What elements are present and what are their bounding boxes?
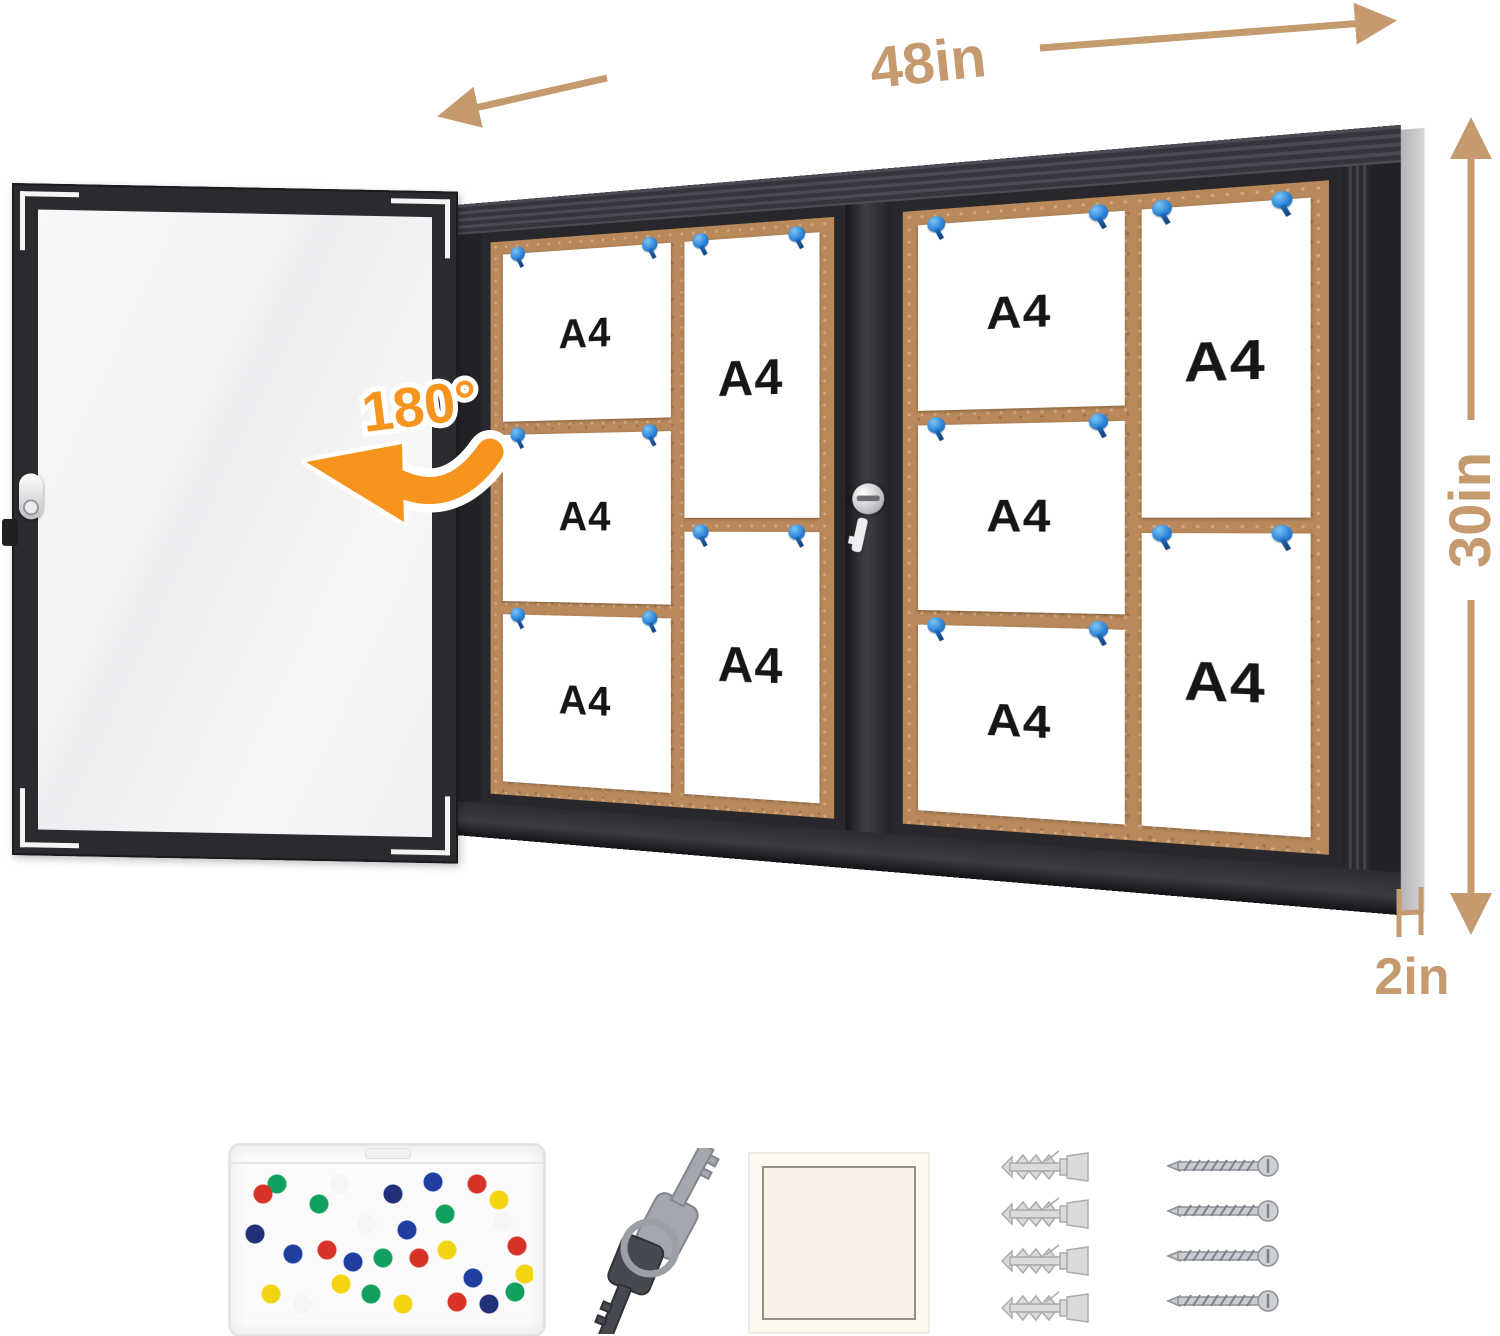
lock-keys bbox=[562, 1148, 732, 1334]
tile-inner-border bbox=[762, 1166, 916, 1320]
paper-size-label: A4 bbox=[986, 695, 1051, 750]
pin-box-latch bbox=[365, 1148, 411, 1159]
cork-board-right: A4 A4 A4 bbox=[902, 180, 1329, 855]
push-pin-icon bbox=[1085, 201, 1113, 232]
push-pin-icon bbox=[785, 522, 809, 549]
width-dimension-arrow bbox=[444, 21, 1390, 115]
push-pin-icon bbox=[923, 414, 949, 443]
open-glass-door bbox=[12, 183, 458, 864]
push-pin-icon bbox=[1148, 522, 1177, 552]
mounting-screws bbox=[1158, 1152, 1290, 1334]
cabinet-hinge-strip bbox=[1345, 165, 1369, 870]
wall-anchor-icon bbox=[1002, 1151, 1088, 1181]
push-pin-icon bbox=[689, 522, 712, 549]
screw-icon bbox=[1168, 1291, 1278, 1311]
push-pin-box bbox=[228, 1143, 546, 1336]
cabinet-frame: A4 A4 A4 bbox=[455, 125, 1401, 916]
paper-size-label: A4 bbox=[559, 494, 612, 541]
door-lock-latch bbox=[19, 473, 43, 519]
white-square-tile bbox=[748, 1152, 930, 1334]
push-pin-icon bbox=[1148, 196, 1177, 228]
push-pin-icon bbox=[923, 213, 949, 243]
cabinet-interior: A4 A4 A4 bbox=[481, 167, 1343, 868]
push-pin-icon bbox=[1085, 619, 1113, 649]
center-door-stile bbox=[845, 202, 891, 834]
cork-board-left: A4 A4 A4 bbox=[491, 217, 834, 819]
paper-column: A4 A4 bbox=[1142, 198, 1311, 838]
paper-size-label: A4 bbox=[559, 309, 612, 358]
wall-anchor-icon bbox=[1002, 1245, 1088, 1275]
paper-size-label: A4 bbox=[1184, 326, 1266, 394]
push-pin-icon bbox=[639, 234, 662, 262]
paper-column: A4 A4 A4 bbox=[503, 243, 671, 793]
push-pin-icon bbox=[785, 223, 809, 252]
height-dimension-label: 30in bbox=[1438, 452, 1500, 568]
paper-size-label: A4 bbox=[986, 285, 1051, 340]
paper-size-label: A4 bbox=[559, 677, 612, 726]
pinned-paper: A4 bbox=[1142, 533, 1311, 838]
paper-size-label: A4 bbox=[1184, 648, 1266, 716]
push-pin-icon bbox=[689, 230, 712, 258]
sliding-door-right: A4 A4 A4 bbox=[891, 167, 1344, 868]
sliding-door-left: A4 A4 A4 bbox=[481, 205, 845, 830]
pin-box-lid bbox=[231, 1146, 543, 1164]
width-dimension-label: 48in bbox=[867, 24, 989, 101]
pinned-paper: A4 bbox=[917, 625, 1125, 825]
pinned-paper: A4 bbox=[503, 243, 671, 422]
key-in-lock-icon bbox=[850, 517, 867, 553]
pinned-paper: A4 bbox=[684, 232, 819, 517]
push-pin-icon bbox=[1268, 187, 1299, 220]
push-pin-icon bbox=[639, 608, 662, 635]
push-pin-icon bbox=[639, 421, 662, 448]
paper-size-label: A4 bbox=[986, 492, 1051, 544]
pinned-paper: A4 bbox=[503, 615, 671, 793]
pinned-paper: A4 bbox=[917, 420, 1125, 614]
screw-icon bbox=[1168, 1156, 1278, 1176]
paper-size-label: A4 bbox=[718, 347, 784, 408]
paper-size-label: A4 bbox=[718, 635, 784, 696]
cam-lock-icon bbox=[852, 483, 884, 514]
assorted-push-pins bbox=[241, 1166, 533, 1322]
product-illustration: A4 A4 A4 bbox=[0, 0, 1500, 1336]
push-pin-icon bbox=[1268, 522, 1299, 553]
pinned-paper: A4 bbox=[1142, 198, 1311, 518]
door-glass-pane bbox=[38, 209, 432, 837]
pinned-paper: A4 bbox=[503, 431, 671, 605]
pinned-paper: A4 bbox=[684, 531, 819, 803]
wall-anchor-icon bbox=[1002, 1292, 1088, 1322]
pinned-paper: A4 bbox=[917, 211, 1125, 411]
depth-dimension-label: 2in bbox=[1374, 948, 1449, 1006]
paper-column: A4 A4 bbox=[684, 232, 819, 803]
screw-icon bbox=[1168, 1246, 1278, 1266]
push-pin-icon bbox=[508, 425, 529, 451]
screw-icon bbox=[1168, 1201, 1278, 1221]
push-pin-icon bbox=[923, 615, 949, 644]
push-pin-icon bbox=[1085, 410, 1113, 440]
push-pin-icon bbox=[508, 244, 529, 271]
push-pin-icon bbox=[508, 606, 529, 632]
bulletin-board-cabinet: A4 A4 A4 bbox=[455, 125, 1401, 916]
paper-column: A4 A4 A4 bbox=[917, 211, 1125, 825]
wall-anchors bbox=[988, 1150, 1106, 1334]
cabinet-side-panel bbox=[1401, 128, 1424, 912]
door-lock-tab bbox=[2, 519, 18, 546]
wall-anchor-icon bbox=[1002, 1198, 1088, 1228]
